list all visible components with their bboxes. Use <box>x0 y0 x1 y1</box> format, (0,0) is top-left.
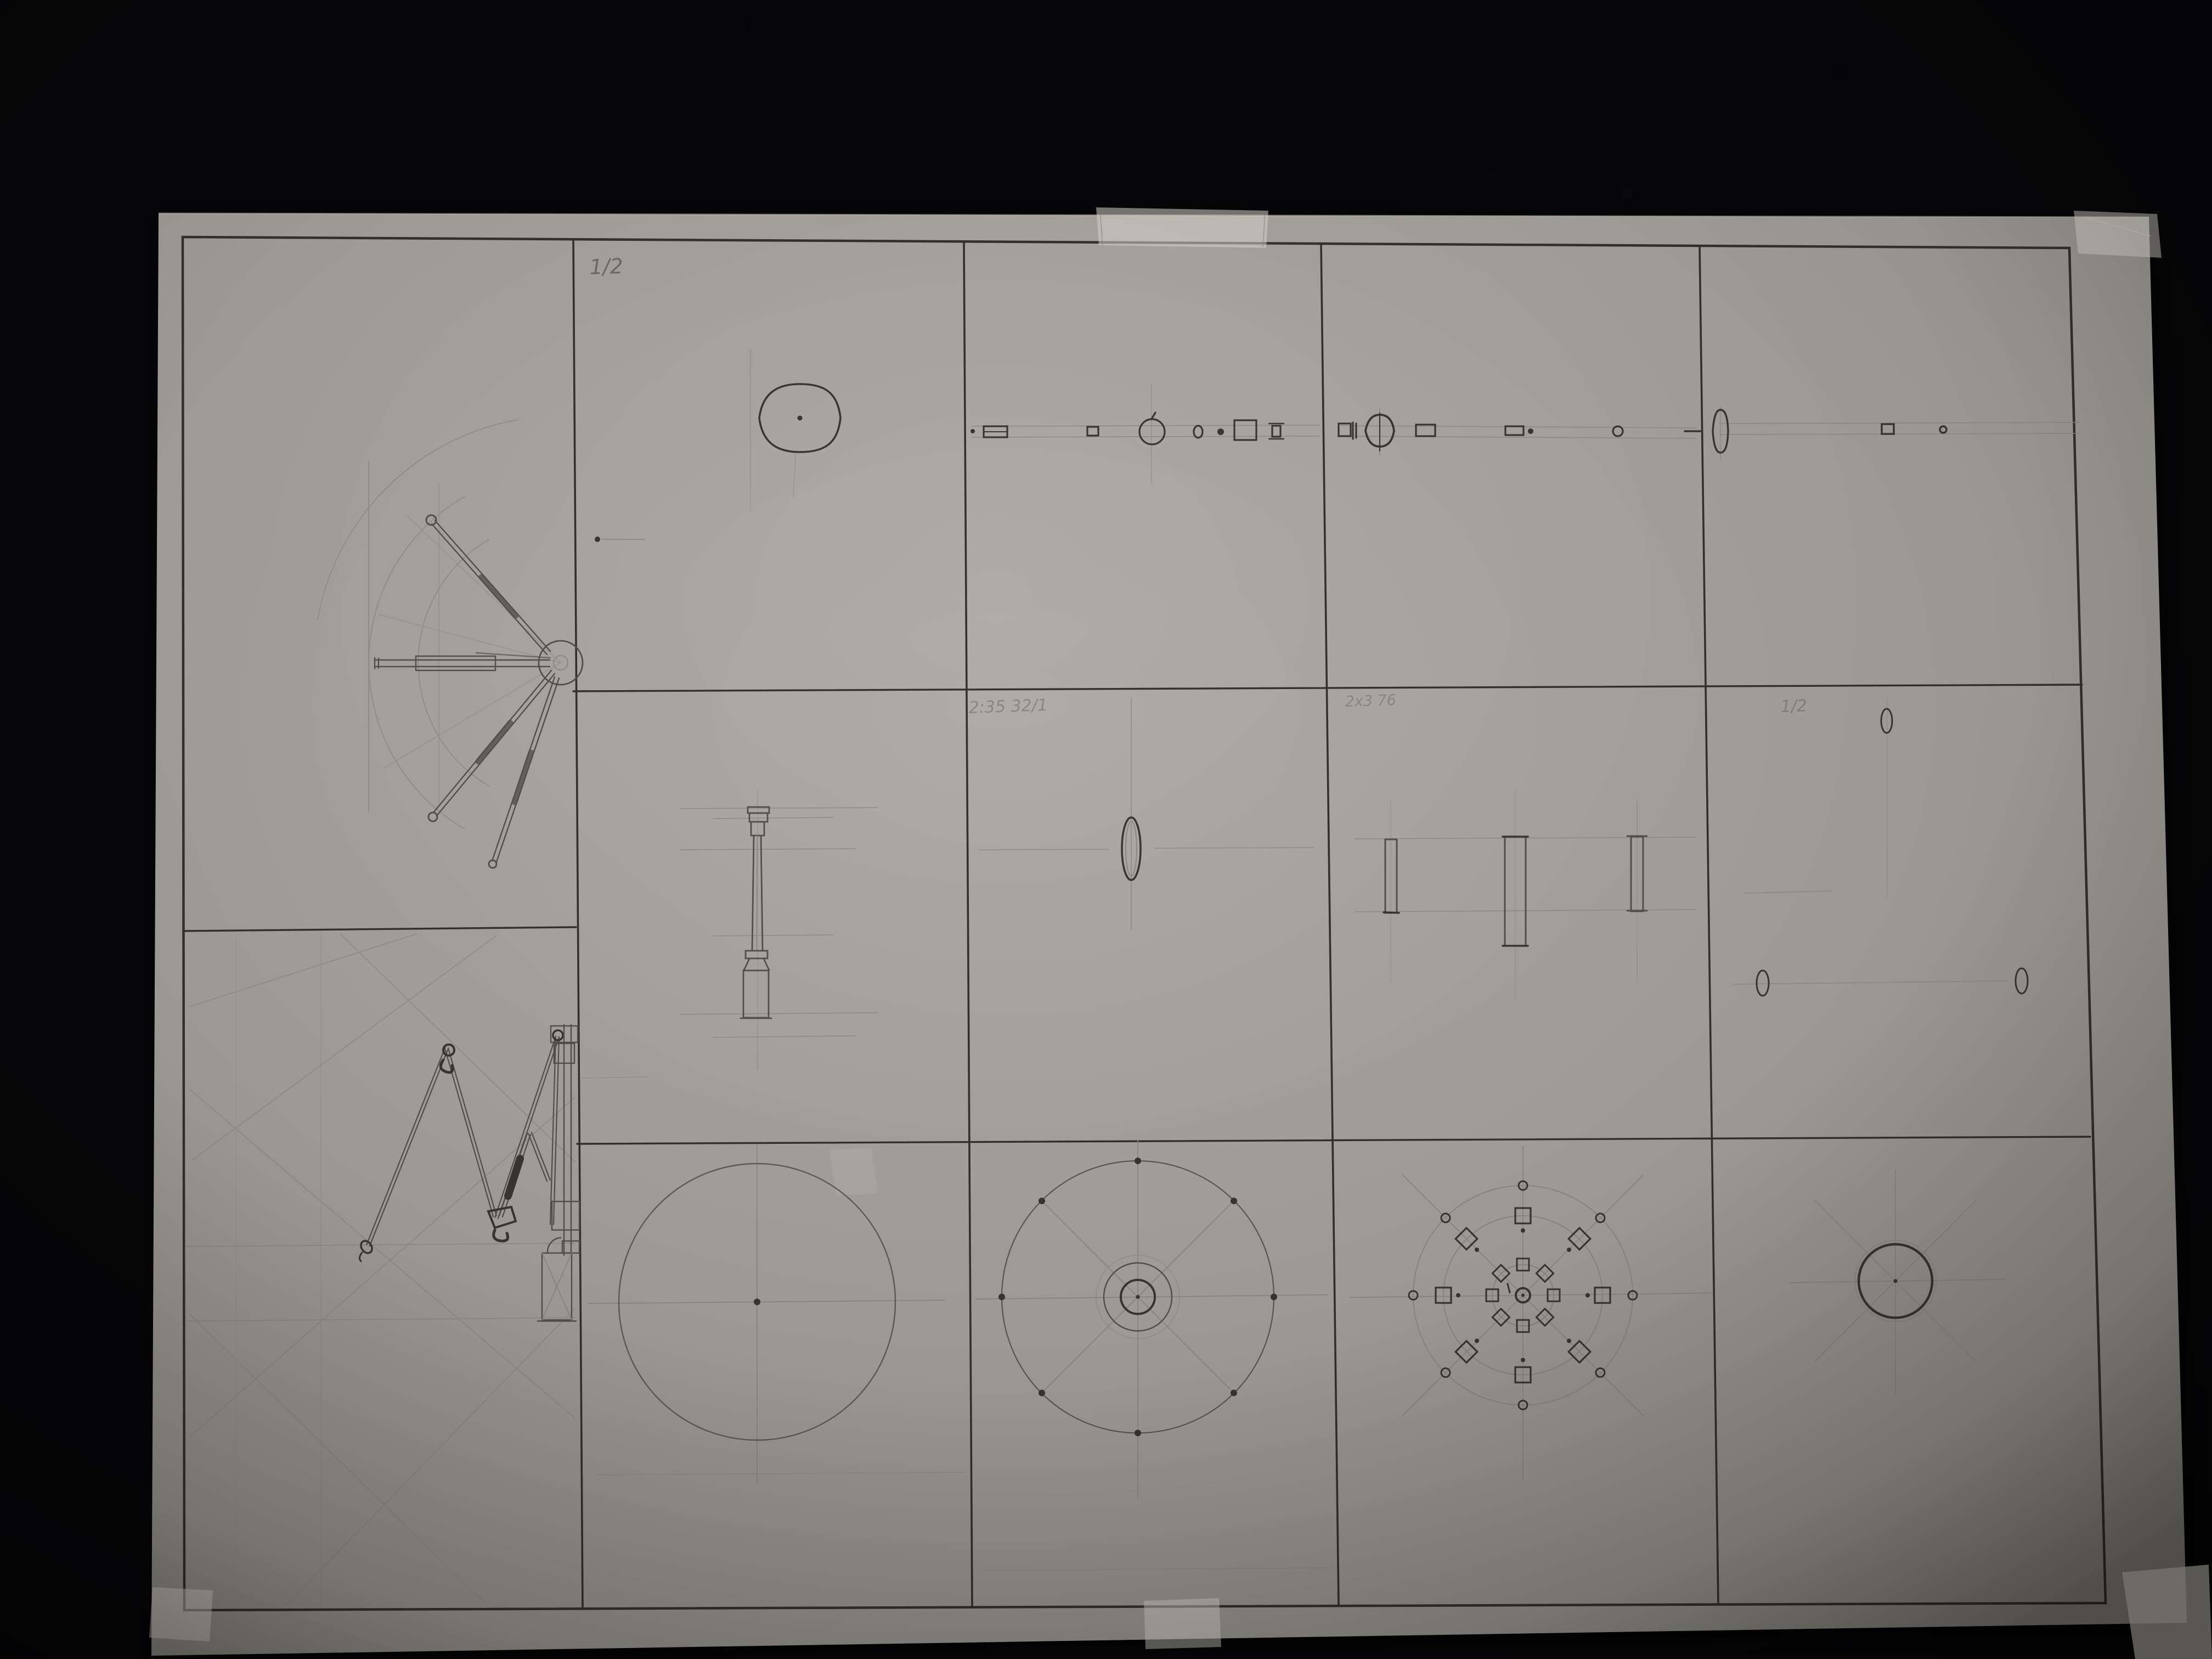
drawing-sheet-photo: 1/2 <box>0 0 2212 1659</box>
photo-vignette <box>0 0 2212 1659</box>
photo-backdrop: 1/2 <box>0 0 2212 1659</box>
